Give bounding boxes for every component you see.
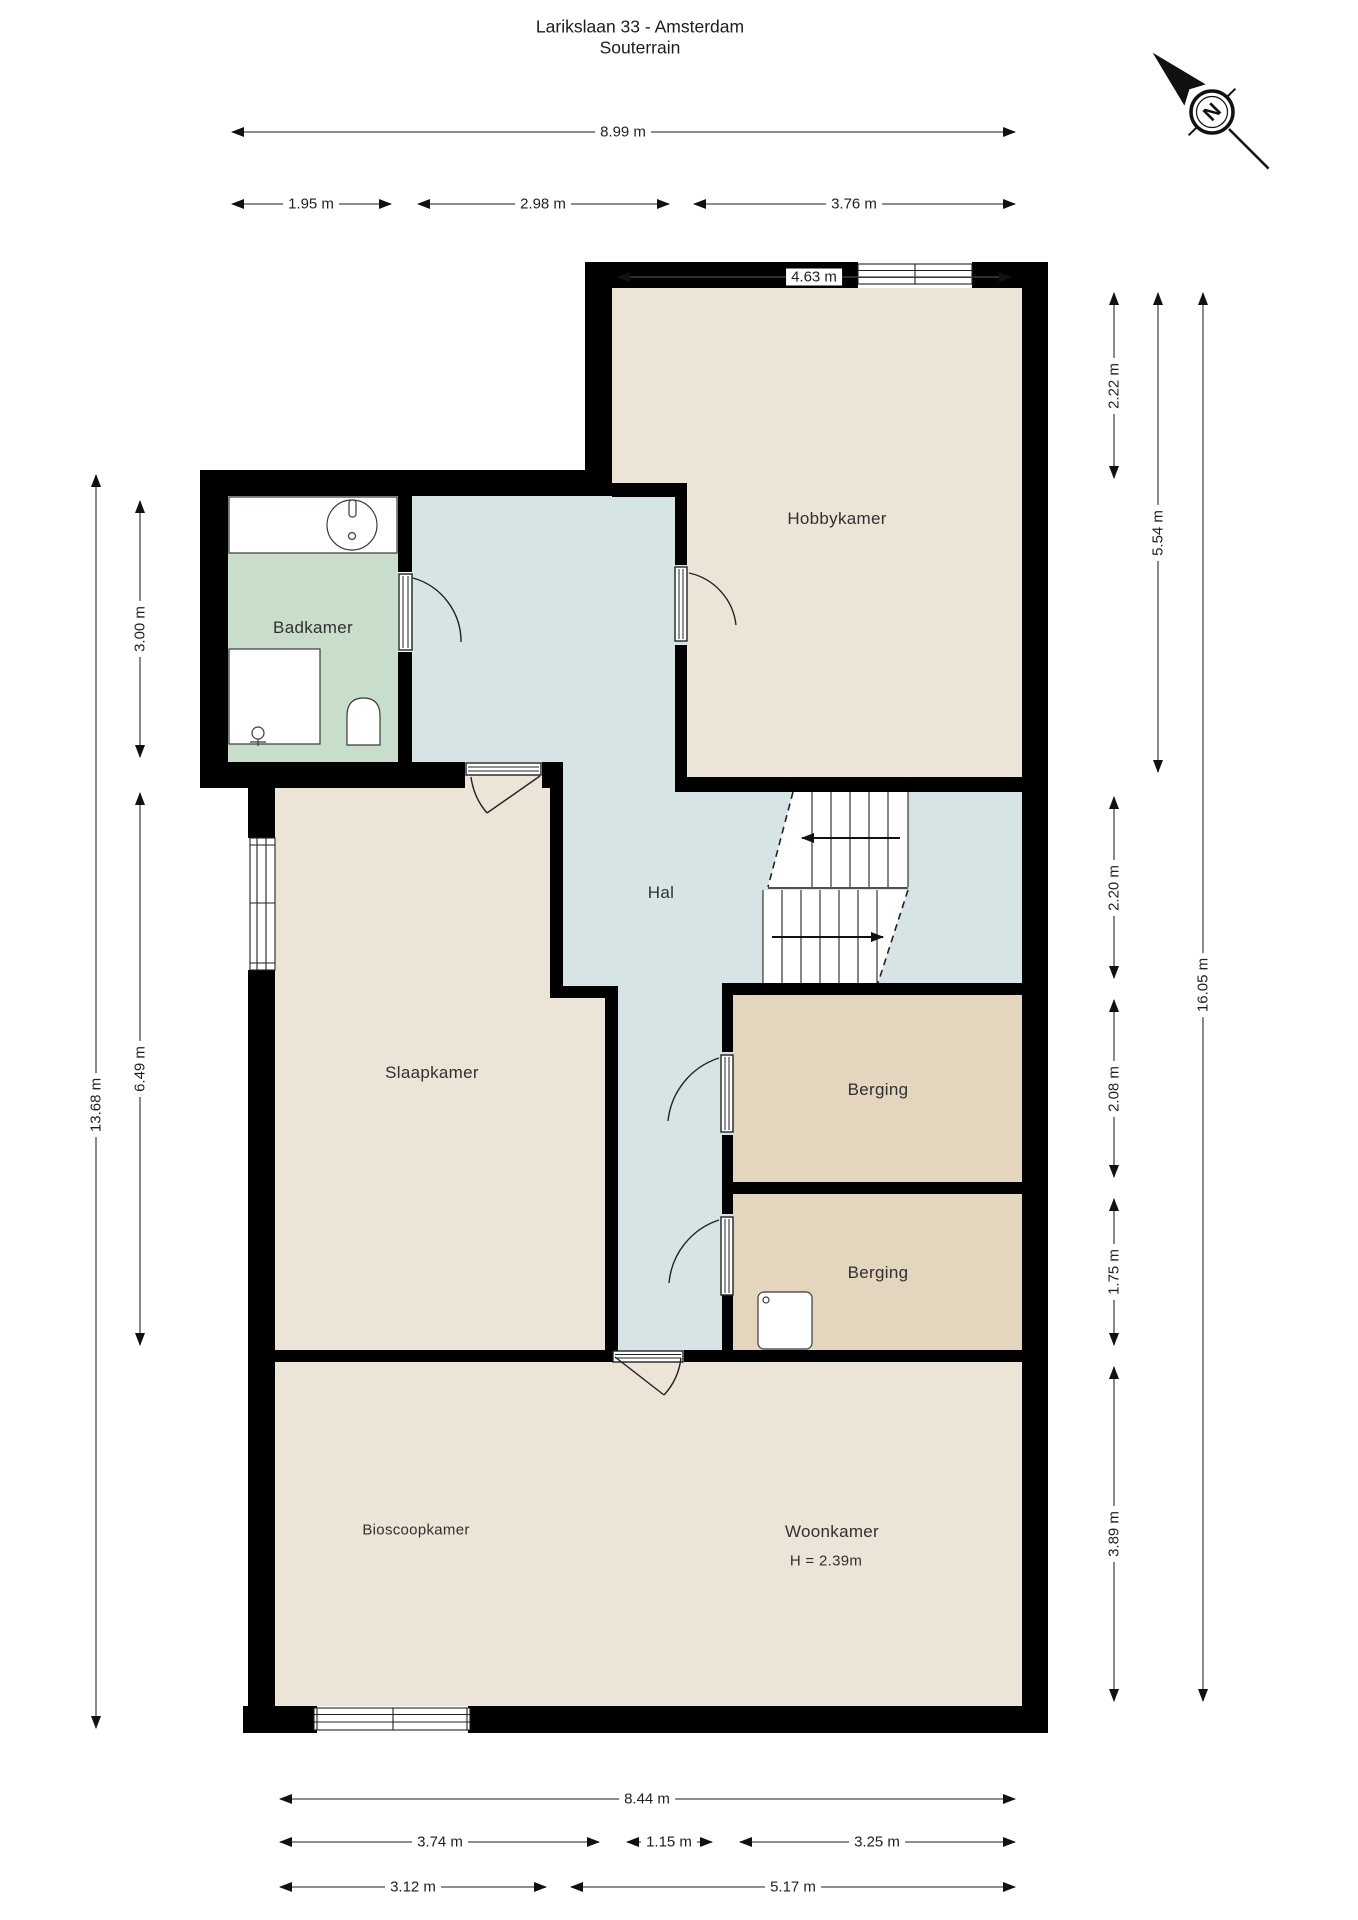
shower-tray	[229, 649, 320, 744]
room-label-bioscoopkamer: Bioscoopkamer	[362, 1522, 469, 1539]
window-hobbykamer-top	[858, 264, 972, 284]
dim-top-overall: 8.99 m	[595, 124, 651, 141]
room-label-hal: Hal	[648, 883, 674, 903]
dim-top-hobby: 3.76 m	[826, 196, 882, 213]
dim-bottom-4: 3.12 m	[385, 1879, 441, 1896]
dim-top-hal: 2.98 m	[515, 196, 571, 213]
room-label-hobbykamer: Hobbykamer	[787, 509, 886, 529]
plan-subtitle: Souterrain	[600, 38, 681, 59]
dim-left-slaapkamer: 6.49 m	[132, 1041, 149, 1097]
dim-bottom-3: 3.25 m	[849, 1834, 905, 1851]
dim-bottom-2: 1.15 m	[641, 1834, 697, 1851]
dim-right-overall: 16.05 m	[1195, 953, 1212, 1017]
washbasin-faucet-icon	[349, 500, 356, 517]
toilet-icon	[347, 698, 380, 745]
dim-right-5: 1.75 m	[1106, 1244, 1123, 1300]
room-label-badkamer: Badkamer	[273, 618, 353, 638]
window-slaapkamer-left	[250, 838, 275, 970]
dim-left-badkamer: 3.00 m	[132, 601, 149, 657]
room-label-woonkamer-height: H = 2.39m	[790, 1553, 862, 1570]
dim-top-hobby-upper: 4.63 m	[786, 269, 842, 286]
room-label-berging-1: Berging	[848, 1080, 909, 1100]
dim-right-2: 5.54 m	[1150, 505, 1167, 561]
dim-right-4: 2.08 m	[1106, 1061, 1123, 1117]
floorplan-page: N Larikslaan 33 - Amsterdam Souterrain B…	[0, 0, 1358, 1920]
room-label-slaapkamer: Slaapkamer	[385, 1063, 479, 1083]
dim-right-6: 3.89 m	[1106, 1506, 1123, 1562]
dim-right-3: 2.20 m	[1106, 860, 1123, 916]
room-label-woonkamer: Woonkamer	[785, 1522, 879, 1542]
dim-right-1: 2.22 m	[1106, 358, 1123, 414]
dim-bottom-1: 3.74 m	[412, 1834, 468, 1851]
plan-title: Larikslaan 33 - Amsterdam	[536, 17, 744, 38]
dim-bottom-overall: 8.44 m	[619, 1791, 675, 1808]
room-label-berging-2: Berging	[848, 1263, 909, 1283]
floorplan-drawing: N	[0, 0, 1358, 1920]
dim-bottom-5: 5.17 m	[765, 1879, 821, 1896]
dim-top-badkamer: 1.95 m	[283, 196, 339, 213]
shower-head-icon	[252, 727, 264, 739]
compass-north-icon: N	[1129, 29, 1292, 192]
window-bioscoopkamer-bottom	[314, 1708, 470, 1730]
staircase	[763, 792, 908, 983]
dim-left-overall: 13.68 m	[88, 1073, 105, 1137]
